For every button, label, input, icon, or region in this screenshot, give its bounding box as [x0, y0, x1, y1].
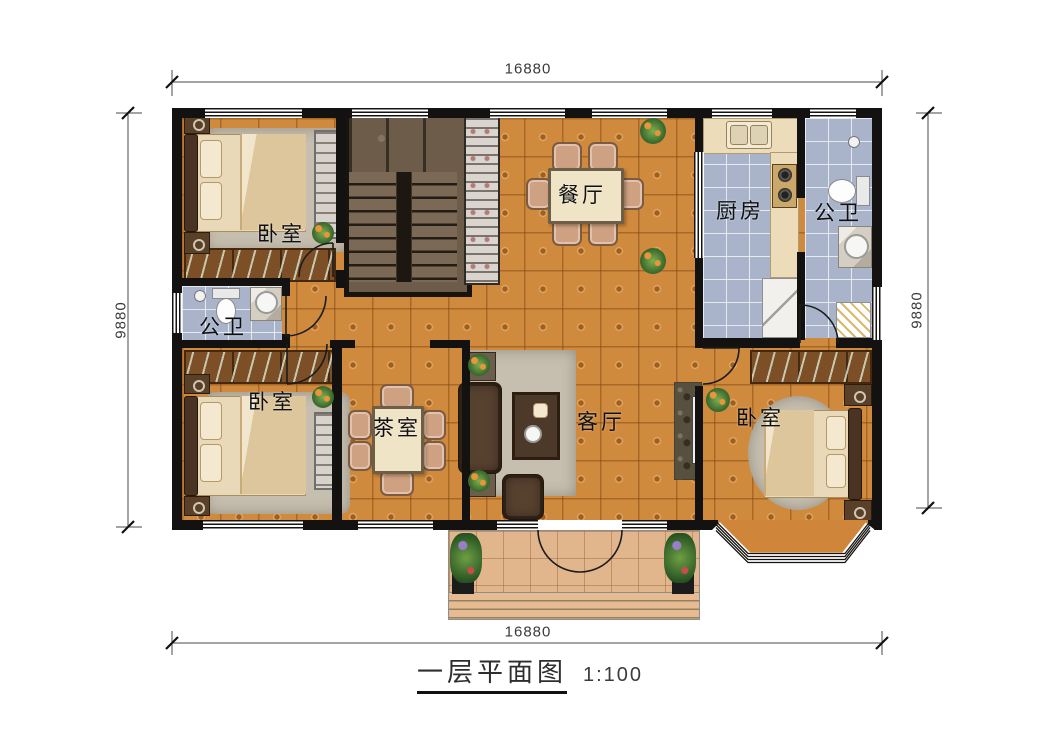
room-label-bath-top-right: 公卫 — [814, 197, 862, 227]
dim-bottom-value: 16880 — [505, 624, 552, 641]
entrance-door-left — [538, 530, 580, 572]
drawing-title: 一层平面图1:100 — [0, 652, 1060, 689]
dim-left-value: 9880 — [113, 301, 130, 338]
title-text: 一层平面图 — [417, 657, 567, 694]
room-label-bedroom-bottom-left: 卧室 — [248, 386, 296, 416]
room-label-dining: 餐厅 — [558, 179, 606, 209]
bedroom3-door — [703, 348, 739, 384]
bedroom2-door — [287, 344, 327, 384]
room-label-living: 客厅 — [577, 406, 625, 436]
dim-right-value: 9880 — [909, 291, 926, 328]
bathleft-door — [286, 296, 326, 336]
room-label-kitchen: 厨房 — [716, 195, 764, 225]
title-scale: 1:100 — [583, 664, 643, 686]
floor-plan-canvas: 卧室 餐厅 厨房 公卫 公卫 卧室 茶室 客厅 卧室 16880 16880 9… — [0, 0, 1060, 749]
room-label-bath-left: 公卫 — [199, 311, 247, 341]
bathtr-door — [800, 305, 838, 343]
room-label-tea-room: 茶室 — [373, 412, 421, 442]
room-label-bedroom-top-left: 卧室 — [257, 218, 305, 248]
entrance-door-right — [580, 530, 622, 572]
dim-top-value: 16880 — [505, 61, 552, 78]
room-label-bedroom-bottom-right: 卧室 — [736, 402, 784, 432]
bedroom1-door — [299, 243, 333, 277]
